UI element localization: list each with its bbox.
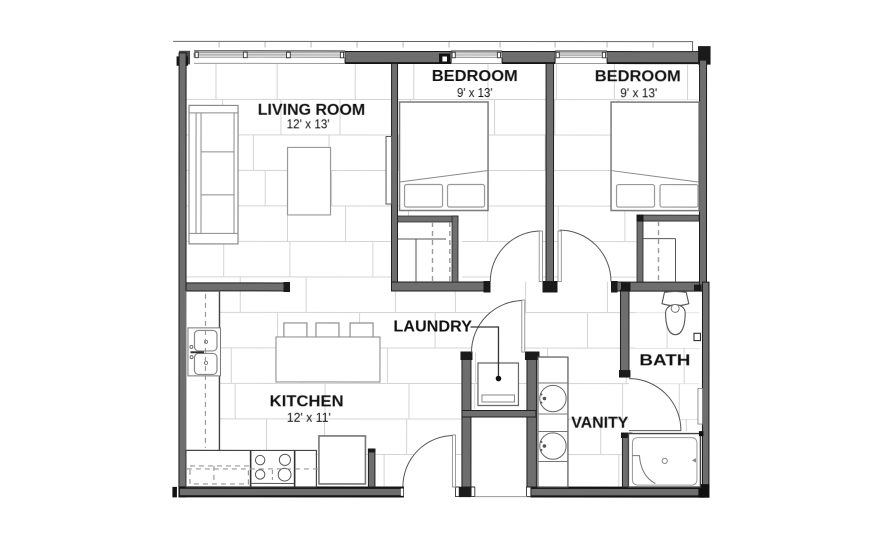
svg-text:KITCHEN: KITCHEN bbox=[270, 393, 344, 410]
svg-text:12' x 13': 12' x 13' bbox=[287, 116, 330, 131]
svg-text:12' x 11': 12' x 11' bbox=[287, 410, 331, 425]
svg-text:BEDROOM: BEDROOM bbox=[432, 68, 518, 85]
svg-text:VANITY: VANITY bbox=[571, 415, 628, 432]
svg-text:9' x 13': 9' x 13' bbox=[620, 85, 657, 100]
svg-text:BEDROOM: BEDROOM bbox=[595, 68, 681, 85]
svg-text:BATH: BATH bbox=[639, 352, 690, 369]
svg-text:LAUNDRY: LAUNDRY bbox=[393, 318, 472, 335]
svg-text:9' x 13': 9' x 13' bbox=[457, 85, 493, 100]
